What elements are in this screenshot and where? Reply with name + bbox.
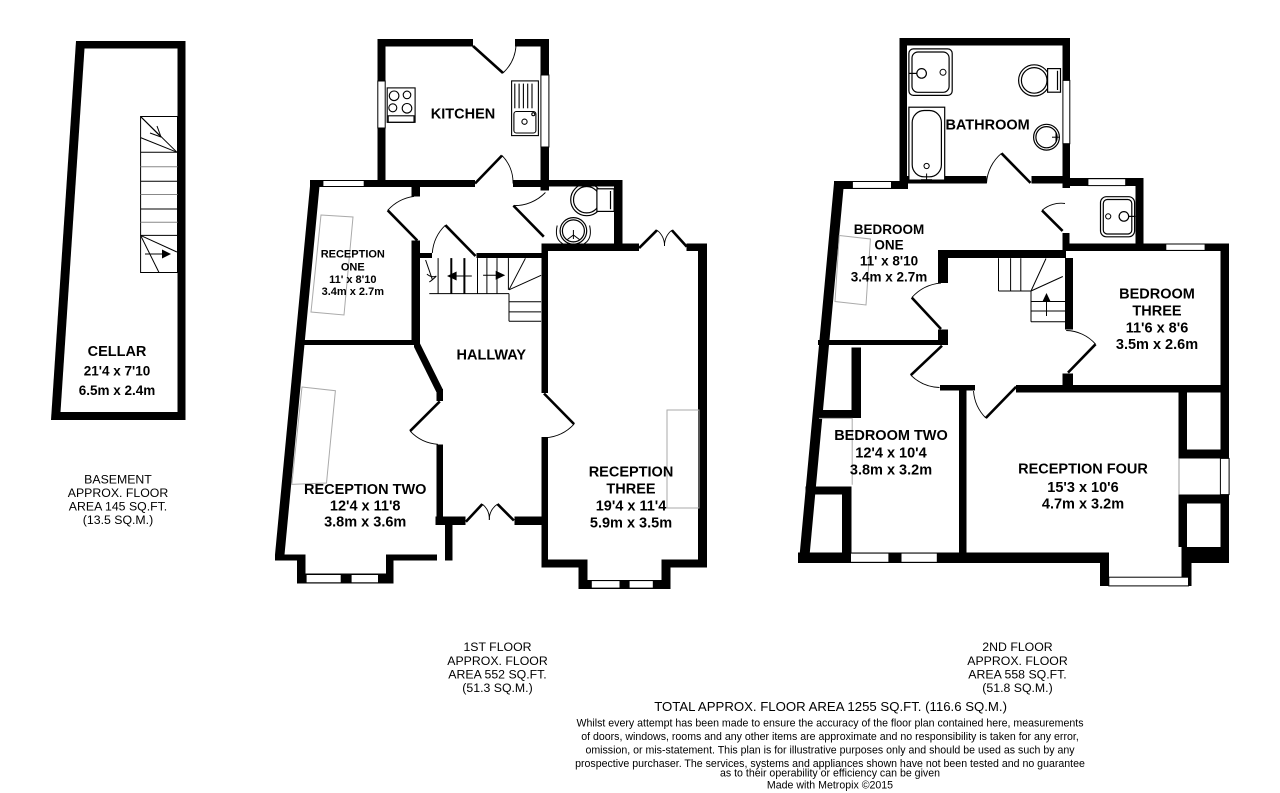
svg-text:RECEPTION: RECEPTION: [589, 465, 674, 481]
svg-text:4.7m x 3.2m: 4.7m x 3.2m: [1042, 497, 1124, 513]
svg-text:(13.5 SQ.M.): (13.5 SQ.M.): [83, 513, 153, 527]
svg-text:3.4m x 2.7m: 3.4m x 2.7m: [851, 269, 928, 284]
svg-text:HALLWAY: HALLWAY: [457, 348, 527, 364]
svg-text:ONE: ONE: [874, 238, 903, 253]
svg-text:21'4 x 7'10: 21'4 x 7'10: [84, 364, 150, 379]
svg-text:5.9m x 3.5m: 5.9m x 3.5m: [590, 515, 672, 531]
svg-text:3.5m x 2.6m: 3.5m x 2.6m: [1116, 337, 1198, 353]
svg-text:RECEPTION: RECEPTION: [321, 249, 385, 261]
svg-text:ONE: ONE: [341, 261, 365, 273]
svg-text:(51.3 SQ.M.): (51.3 SQ.M.): [462, 681, 532, 695]
svg-text:THREE: THREE: [606, 482, 655, 498]
svg-text:BASEMENT: BASEMENT: [84, 472, 152, 486]
svg-text:BEDROOM: BEDROOM: [1119, 287, 1195, 303]
svg-text:CELLAR: CELLAR: [88, 344, 147, 360]
svg-text:11' x 8'10: 11' x 8'10: [329, 274, 376, 286]
svg-text:APPROX. FLOOR: APPROX. FLOOR: [68, 486, 169, 500]
svg-text:omission, or mis-statement. Th: omission, or mis-statement. This plan is…: [585, 744, 1075, 756]
svg-text:AREA 145 SQ.FT.: AREA 145 SQ.FT.: [69, 499, 167, 513]
svg-text:as to their operability or eff: as to their operability or efficiency ca…: [720, 767, 940, 779]
svg-text:APPROX. FLOOR: APPROX. FLOOR: [447, 654, 548, 668]
svg-text:12'4 x 11'8: 12'4 x 11'8: [330, 498, 401, 514]
svg-text:1ST FLOOR: 1ST FLOOR: [463, 640, 531, 654]
svg-text:19'4 x 11'4: 19'4 x 11'4: [596, 499, 667, 515]
svg-text:APPROX. FLOOR: APPROX. FLOOR: [967, 654, 1068, 668]
svg-text:Whilst every attempt has been: Whilst every attempt has been made to en…: [576, 717, 1083, 729]
svg-text:RECEPTION FOUR: RECEPTION FOUR: [1018, 462, 1148, 478]
svg-text:12'4 x 10'4: 12'4 x 10'4: [855, 445, 926, 461]
svg-text:THREE: THREE: [1132, 304, 1181, 320]
svg-text:of doors, windows, rooms and a: of doors, windows, rooms and any other i…: [581, 731, 1079, 743]
svg-text:3.8m x 3.6m: 3.8m x 3.6m: [324, 515, 406, 531]
svg-text:3.4m x 2.7m: 3.4m x 2.7m: [322, 286, 385, 298]
svg-text:BEDROOM: BEDROOM: [854, 222, 925, 237]
svg-text:15'3 x 10'6: 15'3 x 10'6: [1047, 480, 1118, 496]
svg-text:AREA 552 SQ.FT.: AREA 552 SQ.FT.: [448, 667, 546, 681]
svg-text:(51.8 SQ.M.): (51.8 SQ.M.): [982, 681, 1052, 695]
svg-text:BEDROOM TWO: BEDROOM TWO: [834, 428, 948, 444]
svg-text:BATHROOM: BATHROOM: [945, 117, 1029, 133]
svg-text:TOTAL APPROX. FLOOR AREA 1255: TOTAL APPROX. FLOOR AREA 1255 SQ.FT. (11…: [654, 699, 1007, 714]
svg-text:11' x 8'10: 11' x 8'10: [860, 254, 918, 269]
svg-text:KITCHEN: KITCHEN: [431, 107, 495, 123]
svg-text:RECEPTION TWO: RECEPTION TWO: [304, 482, 426, 498]
svg-text:3.8m x 3.2m: 3.8m x 3.2m: [850, 462, 932, 478]
svg-text:11'6 x 8'6: 11'6 x 8'6: [1126, 321, 1189, 337]
svg-text:2ND FLOOR: 2ND FLOOR: [982, 640, 1052, 654]
svg-text:Made with Metropix ©2015: Made with Metropix ©2015: [767, 779, 893, 791]
svg-text:AREA 558 SQ.FT.: AREA 558 SQ.FT.: [968, 667, 1066, 681]
svg-text:6.5m x 2.4m: 6.5m x 2.4m: [79, 383, 156, 398]
